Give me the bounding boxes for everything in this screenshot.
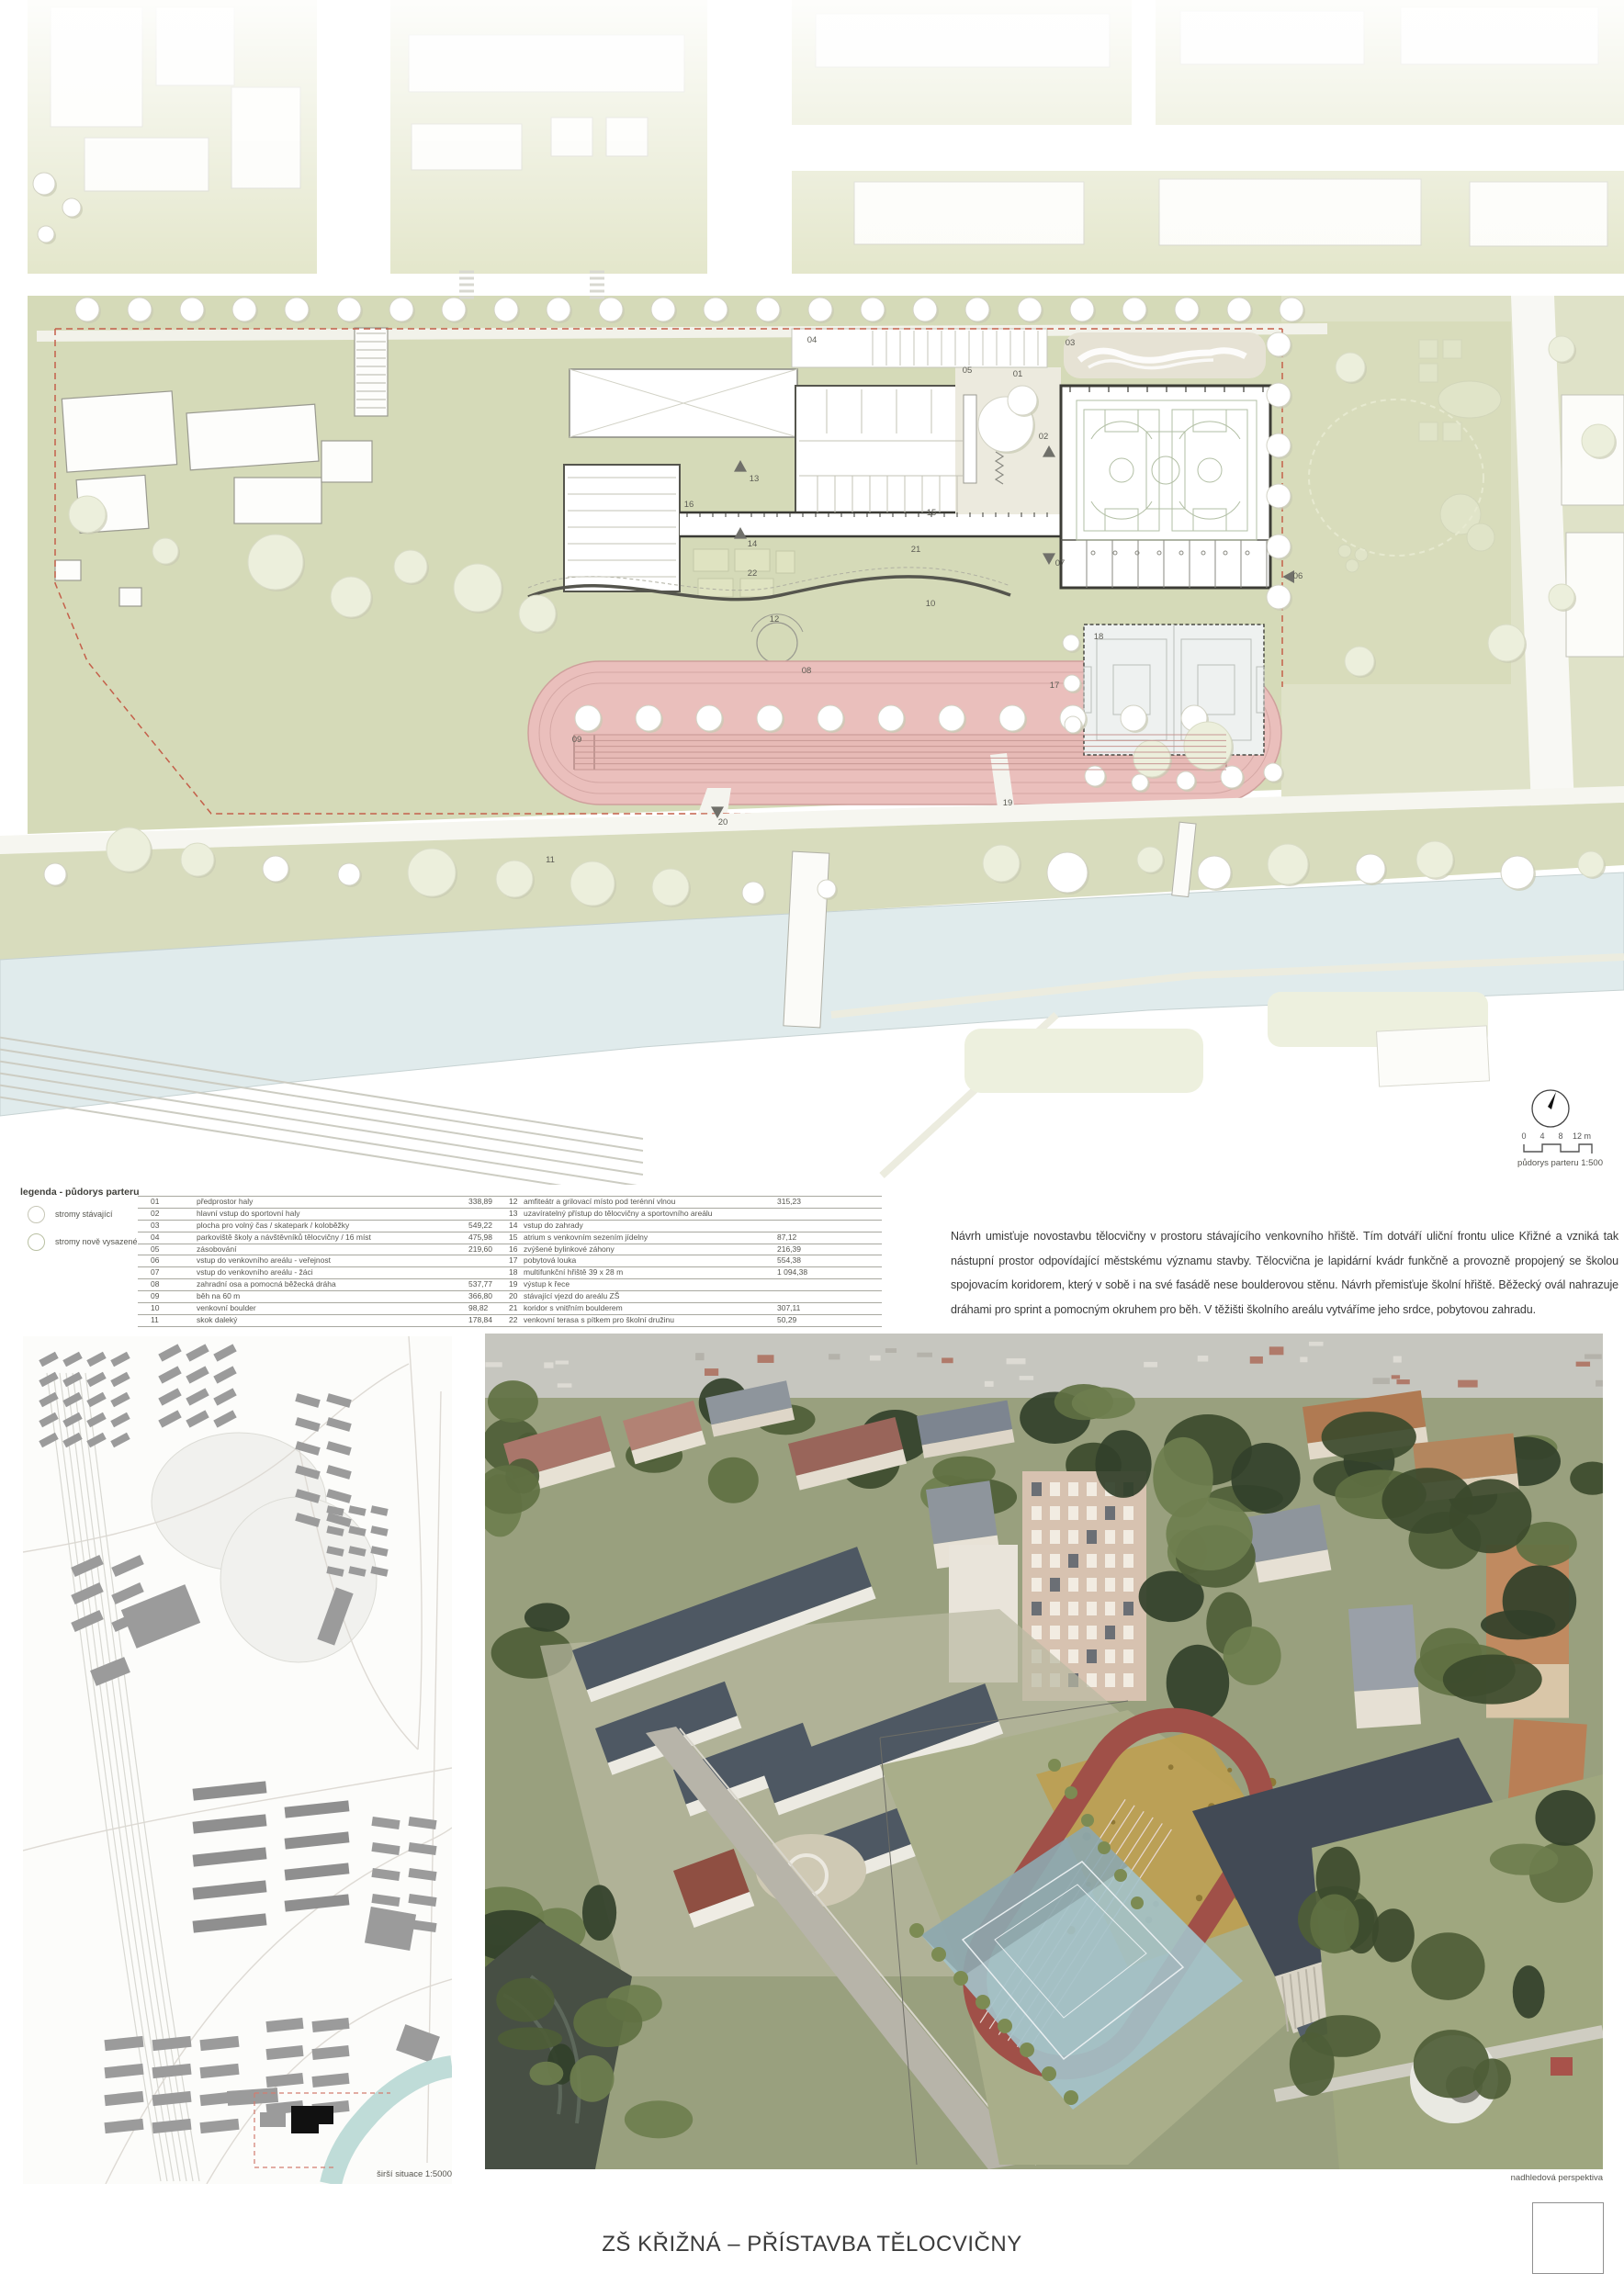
legend-label: vstup do zahrady	[524, 1221, 773, 1232]
legend-row: 15atrium s venkovním sezením jídelny87,1…	[496, 1232, 882, 1244]
legend-label: uzavíratelný přístup do tělocvičny a spo…	[524, 1209, 773, 1220]
legend-num: 02	[138, 1209, 197, 1220]
svg-text:12: 12	[770, 614, 780, 625]
legend-table-right: 12amfiteátr a grilovací místo pod terénn…	[496, 1196, 882, 1327]
legend-area: 554,38	[773, 1255, 882, 1266]
legend-row: 03plocha pro volný čas / skatepark / kol…	[138, 1220, 539, 1232]
legend-row: 08zahradní osa a pomocná běžecká dráha53…	[138, 1278, 539, 1290]
new-tree-icon	[28, 1233, 45, 1251]
aerial-render-image	[485, 1334, 1603, 2169]
legend-label: venkovní boulder	[197, 1303, 465, 1314]
legend-label: stávající vjezd do areálu ZŠ	[524, 1291, 773, 1302]
legend-area	[773, 1209, 882, 1220]
legend-row: 14vstup do zahrady	[496, 1220, 882, 1232]
legend-label: atrium s venkovním sezením jídelny	[524, 1232, 773, 1244]
legend-num: 21	[496, 1303, 524, 1314]
legend-area: 315,23	[773, 1197, 882, 1208]
legend-area	[773, 1221, 882, 1232]
legend-row: 05zásobování219,60	[138, 1244, 539, 1255]
legend-area: 1 094,38	[773, 1267, 882, 1278]
existing-tree-icon	[28, 1206, 45, 1223]
svg-text:0: 0	[1521, 1131, 1526, 1141]
legend-num: 16	[496, 1244, 524, 1255]
legend-num: 14	[496, 1221, 524, 1232]
legend-label: amfiteátr a grilovací místo pod terénní …	[524, 1197, 773, 1208]
legend-label: multifunkční hřiště 39 x 28 m	[524, 1267, 773, 1278]
new-tree-label: stromy nově vysazené	[55, 1237, 138, 1246]
legend-num: 09	[138, 1291, 197, 1302]
svg-text:05: 05	[963, 366, 973, 376]
aerial-render	[485, 1334, 1603, 2169]
legend-num: 20	[496, 1291, 524, 1302]
legend-num: 19	[496, 1279, 524, 1290]
svg-text:02: 02	[1039, 432, 1049, 442]
legend-label: pobytová louka	[524, 1255, 773, 1266]
render-caption: nadhledová perspektiva	[1419, 2173, 1603, 2183]
legend-row: 18multifunkční hřiště 39 x 28 m1 094,38	[496, 1266, 882, 1278]
legend-row: 17pobytová louka554,38	[496, 1255, 882, 1266]
legend-label: zásobování	[197, 1244, 465, 1255]
svg-text:8: 8	[1558, 1131, 1562, 1141]
legend-area: 216,39	[773, 1244, 882, 1255]
svg-text:19: 19	[1003, 798, 1013, 808]
svg-text:4: 4	[1539, 1131, 1544, 1141]
legend-label: koridor s vnitřním boulderem	[524, 1303, 773, 1314]
legend-row: 19výstup k řece	[496, 1278, 882, 1290]
presentation-sheet: 0102030405060708091011121314151617181920…	[0, 0, 1624, 2296]
svg-text:12 m: 12 m	[1573, 1131, 1591, 1141]
legend-num: 17	[496, 1255, 524, 1266]
svg-text:15: 15	[927, 508, 937, 518]
legend-label: vstup do venkovního areálu - veřejnost	[197, 1255, 465, 1266]
legend-num: 10	[138, 1303, 197, 1314]
legend-row: 20stávající vjezd do areálu ZŠ	[496, 1290, 882, 1302]
svg-text:20: 20	[718, 817, 728, 827]
legend-label: zahradní osa a pomocná běžecká dráha	[197, 1279, 465, 1290]
project-description: Návrh umisťuje novostavbu tělocvičny v p…	[951, 1224, 1618, 1322]
svg-text:07: 07	[1055, 558, 1066, 568]
context-map-drawing	[23, 1336, 452, 2184]
legend-num: 06	[138, 1255, 197, 1266]
legend-row: 13uzavíratelný přístup do tělocvičny a s…	[496, 1208, 882, 1220]
legend-row: 11skok daleký178,84	[138, 1314, 539, 1326]
svg-text:14: 14	[748, 539, 758, 549]
legend-label: vstup do venkovního areálu - žáci	[197, 1267, 465, 1278]
legend-label: běh na 60 m	[197, 1291, 465, 1302]
legend-label: zvýšené bylinkové záhony	[524, 1244, 773, 1255]
legend-area	[773, 1291, 882, 1302]
legend-num: 07	[138, 1267, 197, 1278]
legend-row: 04parkoviště školy a návštěvníků tělocvi…	[138, 1232, 539, 1244]
context-map	[23, 1336, 452, 2184]
competition-stamp-box	[1532, 2202, 1604, 2274]
svg-text:13: 13	[750, 474, 760, 484]
legend-num: 05	[138, 1244, 197, 1255]
legend-num: 18	[496, 1267, 524, 1278]
legend-label: parkoviště školy a návštěvníků tělocvičn…	[197, 1232, 465, 1244]
legend-label: hlavní vstup do sportovní haly	[197, 1209, 465, 1220]
svg-text:06: 06	[1293, 571, 1303, 581]
existing-tree-label: stromy stávající	[55, 1210, 113, 1219]
svg-text:21: 21	[911, 545, 921, 555]
legend-row: 06vstup do venkovního areálu - veřejnost	[138, 1255, 539, 1266]
legend-row: 12amfiteátr a grilovací místo pod terénn…	[496, 1196, 882, 1208]
legend-row: 10venkovní boulder98,82	[138, 1302, 539, 1314]
svg-text:09: 09	[572, 735, 582, 745]
legend-row: 09běh na 60 m366,80	[138, 1290, 539, 1302]
svg-text:10: 10	[926, 599, 936, 609]
legend-num: 11	[138, 1315, 197, 1326]
legend-label: výstup k řece	[524, 1279, 773, 1290]
legend-row: 21koridor s vnitřním boulderem307,11	[496, 1302, 882, 1314]
legend-num: 01	[138, 1197, 197, 1208]
legend-label: venkovní terasa s pítkem pro školní druž…	[524, 1315, 773, 1326]
legend-label: plocha pro volný čas / skatepark / kolob…	[197, 1221, 465, 1232]
legend-num: 08	[138, 1279, 197, 1290]
svg-text:08: 08	[802, 666, 812, 676]
legend-label: skok daleký	[197, 1315, 465, 1326]
legend-num: 12	[496, 1197, 524, 1208]
legend-row: 01předprostor haly338,89	[138, 1196, 539, 1208]
svg-text:17: 17	[1050, 681, 1060, 691]
svg-text:04: 04	[807, 335, 818, 345]
legend-area	[773, 1279, 882, 1290]
legend-area: 50,29	[773, 1315, 882, 1326]
legend-num: 03	[138, 1221, 197, 1232]
legend-title: legenda - půdorys parteru	[20, 1187, 140, 1198]
svg-text:03: 03	[1066, 338, 1076, 348]
legend-label: předprostor haly	[197, 1197, 465, 1208]
legend-num: 15	[496, 1232, 524, 1244]
plan-caption: půdorys parteru 1:500	[1479, 1158, 1603, 1168]
context-map-caption: širší situace 1:5000	[303, 2169, 452, 2179]
legend-num: 04	[138, 1232, 197, 1244]
legend-area: 307,11	[773, 1303, 882, 1314]
svg-text:22: 22	[748, 568, 758, 579]
legend-num: 13	[496, 1209, 524, 1220]
legend-row: 07vstup do venkovního areálu - žáci	[138, 1266, 539, 1278]
legend-row: 02hlavní vstup do sportovní haly	[138, 1208, 539, 1220]
svg-text:11: 11	[546, 855, 555, 865]
svg-text:16: 16	[684, 500, 694, 510]
legend-row: 16zvýšené bylinkové záhony216,39	[496, 1244, 882, 1255]
legend-table-left: 01předprostor haly338,8902hlavní vstup d…	[138, 1196, 539, 1327]
site-plan-drawing: 0102030405060708091011121314151617181920…	[0, 0, 1624, 1185]
sheet-title: ZŠ KŘIŽNÁ – PŘÍSTAVBA TĚLOCVIČNY	[0, 2232, 1624, 2257]
svg-text:01: 01	[1013, 369, 1023, 379]
site-plan: 0102030405060708091011121314151617181920…	[0, 0, 1624, 1185]
svg-text:18: 18	[1094, 632, 1104, 642]
legend-num: 22	[496, 1315, 524, 1326]
legend-area: 87,12	[773, 1232, 882, 1244]
legend-row: 22venkovní terasa s pítkem pro školní dr…	[496, 1314, 882, 1326]
